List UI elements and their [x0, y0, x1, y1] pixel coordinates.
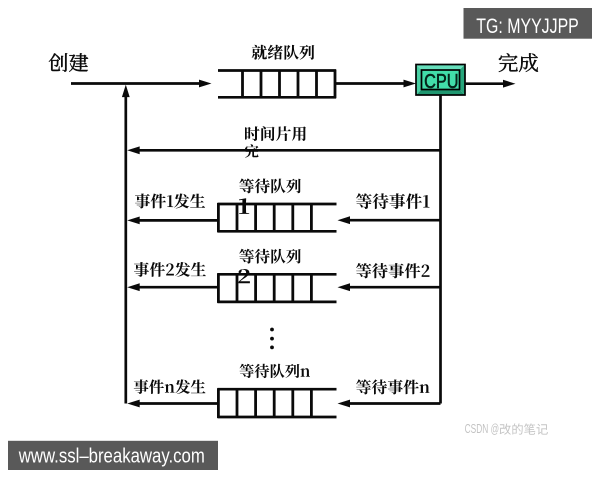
svg-text:TG: MYYJJPP: TG: MYYJJPP	[476, 15, 579, 38]
svg-text:CSDN @: CSDN @	[465, 422, 500, 436]
svg-text:www.ssl–breakaway.com: www.ssl–breakaway.com	[18, 445, 205, 467]
svg-text:CPU: CPU	[424, 70, 458, 93]
